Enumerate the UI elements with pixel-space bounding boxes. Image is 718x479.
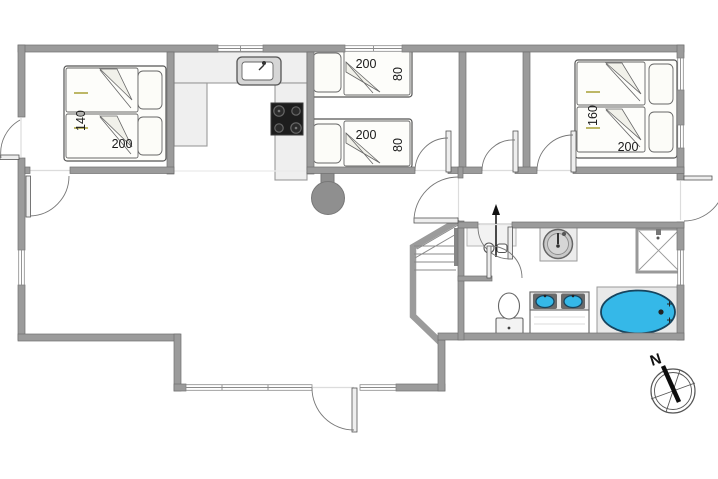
door-hall-terrace-east: [684, 176, 718, 221]
bed-double-right: 160 200: [575, 60, 677, 158]
bed-single-bottom: 200 80: [310, 119, 412, 168]
floor-plan-drawing: 140 200 200 80 200 80 160 200: [0, 0, 718, 479]
round-washbasin-icon: [540, 227, 577, 261]
shower-icon: [637, 229, 680, 272]
bathtub-icon: [597, 287, 683, 338]
door-bedroom-left: [26, 176, 69, 217]
bed-length-label: 200: [112, 137, 133, 151]
window-south-small: [360, 385, 396, 391]
compass-north-label: N: [648, 350, 664, 370]
bed-width-label: 80: [391, 138, 405, 152]
window-right-bedroom-2: [678, 125, 684, 148]
door-alcove-bedroom: [415, 131, 451, 172]
window-kitchen: [218, 46, 263, 52]
double-washbasin-icon: [530, 292, 589, 334]
window-right-bedroom-1: [678, 58, 684, 90]
bed-length-label: 200: [356, 57, 377, 71]
door-bedroom-left-terrace: [0, 120, 20, 160]
bed-length-label: 200: [618, 140, 639, 154]
window-south-band: [186, 385, 312, 391]
door-middle-room: [482, 131, 518, 172]
kitchen-sink-icon: [237, 57, 281, 85]
door-living-terrace-south: [312, 388, 357, 432]
bed-length-label: 200: [356, 128, 377, 142]
bed-width-label: 140: [74, 110, 88, 131]
staircase: [413, 220, 459, 343]
door-bedroom-right: [537, 131, 576, 172]
window-left-living: [19, 250, 25, 285]
window-alcove: [345, 46, 402, 52]
floor-plan-page: 140 200 200 80 200 80 160 200: [0, 0, 718, 479]
bed-single-top: 200 80: [310, 48, 412, 97]
compass-rose-icon: N: [648, 350, 695, 413]
toilet-icon: [496, 293, 523, 336]
window-right-bathroom: [678, 250, 684, 285]
bed-width-label: 160: [586, 105, 600, 126]
bed-double-left: 140 200: [64, 66, 166, 161]
bed-width-label: 80: [391, 67, 405, 81]
wood-stove-icon: [312, 171, 345, 215]
door-living-to-hall: [414, 177, 458, 223]
cooktop-icon: [271, 103, 303, 135]
